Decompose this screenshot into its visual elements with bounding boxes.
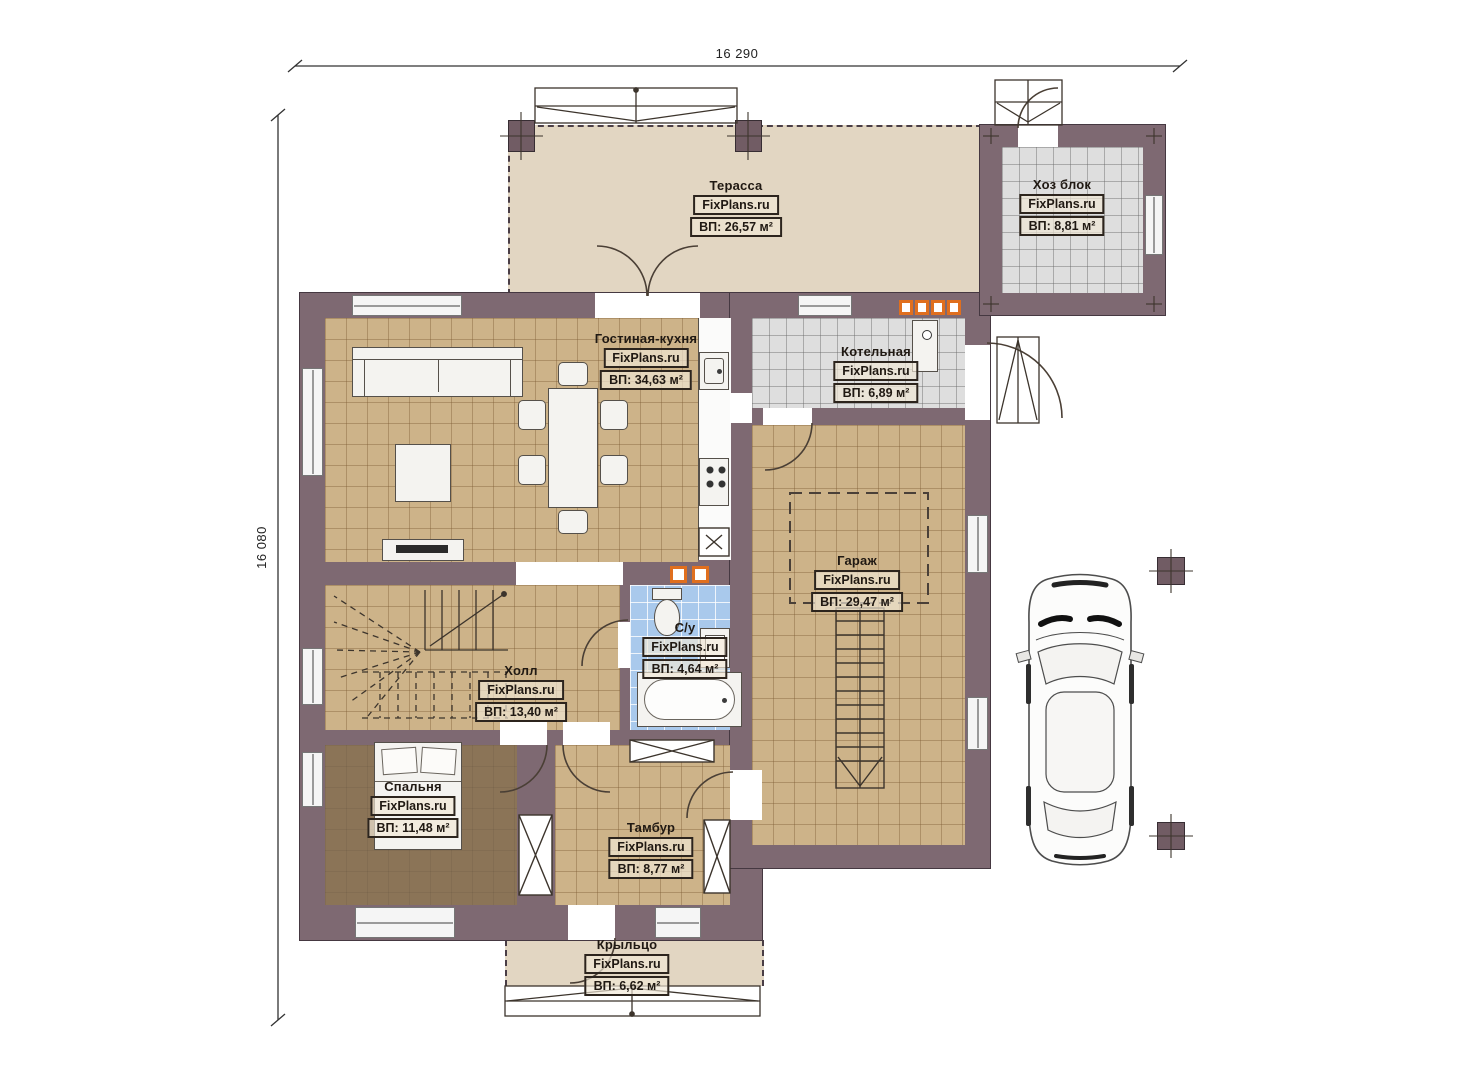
terrace-steps: [535, 88, 737, 123]
room-area: ВП: 6,89 м²: [834, 383, 919, 403]
dining-chair: [518, 455, 546, 485]
room-name: Терасса: [690, 178, 782, 193]
pillow: [381, 747, 418, 775]
bathtub-drain: [722, 698, 727, 703]
room-area: ВП: 4,64 м²: [643, 659, 728, 679]
room-area: ВП: 11,48 м²: [367, 818, 458, 838]
window: [1145, 195, 1163, 255]
room-garage-floor: [752, 425, 965, 845]
room-area: ВП: 26,57 м²: [690, 217, 782, 237]
carport-pillar: [1157, 557, 1185, 585]
room-area: ВП: 29,47 м²: [811, 592, 903, 612]
window: [302, 648, 323, 705]
room-name: Котельная: [833, 344, 918, 359]
room-hall-floor: [325, 585, 620, 730]
dining-chair: [600, 455, 628, 485]
room-label-tambour: Тамбур FixPlans.ru ВП: 8,77 м²: [608, 820, 693, 879]
dining-table: [548, 388, 598, 508]
sofa: [352, 347, 523, 397]
room-name: С/у: [642, 620, 727, 635]
window: [302, 368, 323, 476]
tv: [396, 545, 448, 553]
room-area: ВП: 8,77 м²: [609, 859, 694, 879]
dimension-left: 16 080: [254, 526, 269, 569]
kitchen-sink: [699, 352, 729, 390]
kitchen-boiler-opening: [730, 393, 752, 423]
floor-plan-canvas: 16 290 16 080 Терасса FixPlans.ru ВП: 26…: [0, 0, 1473, 1080]
room-label-boiler: Котельная FixPlans.ru ВП: 6,89 м²: [833, 344, 918, 403]
bedroom-door-opening: [500, 722, 547, 745]
room-label-hozblok: Хоз блок FixPlans.ru ВП: 8,81 м²: [1019, 177, 1104, 236]
room-name: Гараж: [811, 553, 903, 568]
tambour-door-opening: [563, 722, 610, 745]
room-name: Спальня: [367, 779, 458, 794]
watermark: FixPlans.ru: [833, 361, 918, 381]
room-label-bath: С/у FixPlans.ru ВП: 4,64 м²: [642, 620, 727, 679]
room-label-living: Гостиная-кухня FixPlans.ru ВП: 34,63 м²: [595, 331, 697, 390]
window: [967, 515, 988, 573]
porch-door-opening: [568, 905, 615, 940]
living-hall-opening: [516, 562, 623, 585]
watermark: FixPlans.ru: [608, 837, 693, 857]
bath-door-opening: [618, 622, 630, 668]
vent-mark: [670, 566, 687, 583]
room-name: Гостиная-кухня: [595, 331, 697, 346]
room-name: Хоз блок: [1019, 177, 1104, 192]
terrace-french-door-opening: [595, 293, 700, 318]
terrace-pillar: [508, 120, 535, 152]
sink-drain: [717, 369, 722, 374]
dining-chair: [558, 362, 588, 386]
boiler-exterior-steps: [997, 337, 1039, 423]
sofa-cushion-divider: [438, 359, 439, 392]
vent-mark: [899, 300, 913, 315]
room-label-porch: Крыльцо FixPlans.ru ВП: 6,62 м²: [584, 937, 669, 996]
terrace-pillar: [735, 120, 762, 152]
vent-mark: [947, 300, 961, 315]
watermark: FixPlans.ru: [814, 570, 899, 590]
watermark: FixPlans.ru: [642, 637, 727, 657]
dining-chair: [600, 400, 628, 430]
coffee-table: [395, 444, 451, 502]
stove: [699, 458, 729, 506]
dining-chair: [558, 510, 588, 534]
window: [355, 907, 455, 938]
window: [352, 295, 462, 316]
watermark: FixPlans.ru: [603, 348, 688, 368]
room-area: ВП: 34,63 м²: [600, 370, 692, 390]
vent-mark: [931, 300, 945, 315]
room-name: Тамбур: [608, 820, 693, 835]
vent-mark: [915, 300, 929, 315]
hozblok-door-opening: [1018, 125, 1058, 147]
room-area: ВП: 6,62 м²: [585, 976, 670, 996]
room-label-terrace: Терасса FixPlans.ru ВП: 26,57 м²: [690, 178, 782, 237]
room-area: ВП: 13,40 м²: [475, 702, 567, 722]
bathtub: [637, 672, 742, 727]
pillow: [420, 747, 457, 775]
room-label-garage: Гараж FixPlans.ru ВП: 29,47 м²: [811, 553, 903, 612]
room-label-bedroom: Спальня FixPlans.ru ВП: 11,48 м²: [367, 779, 458, 838]
window: [967, 697, 988, 750]
room-area: ВП: 8,81 м²: [1020, 216, 1105, 236]
watermark: FixPlans.ru: [584, 954, 669, 974]
window: [655, 907, 701, 938]
vent-mark: [692, 566, 709, 583]
watermark: FixPlans.ru: [478, 680, 563, 700]
dimension-top: 16 290: [716, 46, 759, 61]
carport-pillar: [1157, 822, 1185, 850]
sofa-armrest: [510, 359, 511, 396]
dining-chair: [518, 400, 546, 430]
watermark: FixPlans.ru: [370, 796, 455, 816]
car-top-view: [1016, 575, 1144, 865]
window: [798, 295, 852, 316]
boiler-garage-door-opening: [763, 408, 812, 425]
room-name: Крыльцо: [584, 937, 669, 952]
room-label-hall: Холл FixPlans.ru ВП: 13,40 м²: [475, 663, 567, 722]
watermark: FixPlans.ru: [693, 195, 778, 215]
boiler-exterior-door-opening: [965, 345, 990, 420]
room-name: Холл: [475, 663, 567, 678]
hozblok-steps: [995, 80, 1062, 125]
tambour-garage-door-opening: [730, 770, 762, 820]
window: [302, 752, 323, 807]
boiler-gauge: [922, 330, 932, 340]
watermark: FixPlans.ru: [1019, 194, 1104, 214]
sofa-armrest: [364, 359, 365, 396]
